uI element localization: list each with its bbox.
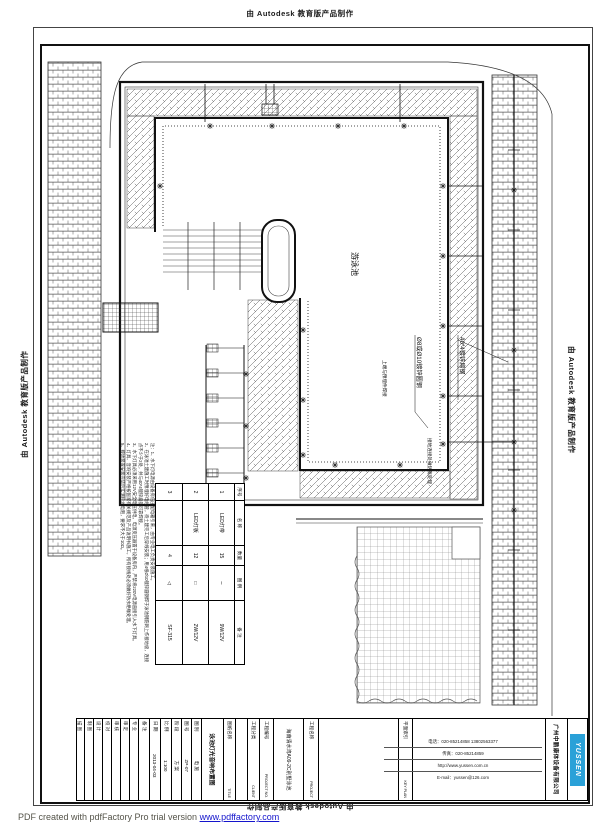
table-cell: 1	[209, 484, 234, 501]
titleblock-row-图纸名称: 图纸名称TITLE	[223, 719, 235, 800]
contact-line: E-mail：yussen@126.com	[384, 772, 542, 783]
titleblock-field-label: 比 例	[163, 719, 169, 731]
titleblock-field-value: ZP-07	[184, 759, 189, 772]
titleblock-row-dtitle: 泳池灯光音响布置图	[201, 719, 223, 800]
titleblock-company: 广州中鹏康体设备有限公司	[553, 724, 561, 795]
titleblock-field-value: 电 施	[194, 761, 200, 771]
grid-plaza	[355, 527, 480, 703]
titleblock-row-比 例: 比 例1:100	[160, 719, 171, 800]
table-cell: ∼	[209, 566, 234, 601]
titleblock-field-label: 备 注	[141, 719, 147, 731]
titleblock-row-logo: YUSSEN	[567, 719, 587, 800]
annotation-flat-steel: 40*4镀锌扁钢	[458, 337, 466, 374]
table-cell	[156, 501, 182, 546]
annotation-weld: 上端与预埋件焊接	[381, 360, 388, 397]
company-logo: YUSSEN	[570, 734, 585, 786]
table-cell: LED灯板	[183, 501, 208, 546]
table-header-cell: 数量	[235, 546, 244, 566]
lamp-junction-symbol	[440, 183, 446, 189]
signature-label: 描 图	[77, 719, 83, 731]
table-header-cell: 名 称	[235, 501, 244, 546]
titleblock-label: 工程编号	[264, 719, 270, 739]
lamp-junction-symbol	[243, 371, 249, 377]
table-row: 1LED灯带15∼9W/12V	[208, 484, 234, 664]
titleblock-label: 图纸名称	[227, 719, 233, 739]
drawing-sheet: 由 Autodesk 教育版产品制作 由 Autodesk 教育版产品制作 由 …	[0, 0, 600, 828]
site-plan-drawing: 游泳池 Ø8或Ø10镀锌圆钢 40*4镀锌扁钢 上端与预埋件焊接 接地连接处做防…	[0, 0, 600, 828]
titleblock-row-图 号: 图 号ZP-07	[181, 719, 191, 800]
table-cell: 2	[183, 484, 208, 501]
contact-line: 传真：020-85214859	[384, 748, 542, 760]
table-header-cell: 图 例	[235, 566, 244, 601]
titleblock-row-校 对: 校 对	[102, 719, 111, 800]
pool-basin	[155, 118, 448, 470]
table-row: 2LED灯板12□2W/12V	[182, 484, 208, 664]
table-row: 34◁SF-315	[156, 484, 182, 664]
signature-label: 校 对	[104, 719, 110, 731]
right-paving-band	[492, 75, 537, 705]
signature-label: 审 定	[122, 719, 128, 731]
pdffactory-link[interactable]: www.pdffactory.com	[200, 812, 280, 822]
table-cell: □	[183, 566, 208, 601]
lamp-junction-symbol	[397, 462, 403, 468]
lamp-junction-symbol	[335, 123, 341, 129]
lamp-junction-symbol	[332, 462, 338, 468]
titleblock-row-pname: 海南清水湾A09-2C别墅泳池	[273, 719, 303, 800]
titleblock-row-工程分类: 工程分类CLIENT	[247, 719, 259, 800]
table-cell: 9W/12V	[209, 601, 234, 664]
titleblock-dtitle: 泳池灯光音响布置图	[208, 733, 217, 785]
pool-label: 游泳池	[350, 252, 360, 276]
annotation-anticorrosion: 接地连接处做防腐处理	[426, 438, 433, 484]
titleblock-row-审 定: 审 定	[120, 719, 129, 800]
lamp-junction-symbol	[300, 452, 306, 458]
titleblock-row-empty	[235, 719, 247, 800]
lamp-junction-symbol	[440, 441, 446, 447]
lamp-junction-symbol	[243, 475, 249, 481]
titleblock-field-value: 方 案	[174, 761, 180, 771]
titleblock-row-描 图: 描 图	[75, 719, 84, 800]
titleblock-label: PROJECT	[309, 781, 313, 800]
lamp-junction-symbol	[440, 323, 446, 329]
titleblock-row-审 核: 审 核	[111, 719, 120, 800]
table-header-cell: 备 注	[235, 601, 244, 664]
equipment-pad	[103, 303, 158, 332]
signature-label: 专 业	[131, 719, 137, 731]
titleblock-label: PROJECT NO.	[265, 774, 269, 800]
titleblock-row-备 注: 备 注	[138, 719, 149, 800]
contact-line: 电话：020-85214858 13802563377	[384, 736, 542, 748]
titleblock-field-label: 阶 段	[174, 719, 180, 731]
lamp-junction-symbol	[300, 397, 306, 403]
titleblock-pname: 海南清水湾A09-2C别墅泳池	[285, 729, 292, 791]
note-line: 3、水下灯具必须采用12V安全电压供电，电源变压器置于设备房内，严禁将220V电…	[131, 443, 137, 663]
lamp-junction-symbol	[440, 253, 446, 259]
lamp-junction-symbol	[401, 123, 407, 129]
annotation-round-steel: Ø8或Ø10镀锌圆钢	[415, 337, 423, 388]
signature-label: 审 核	[113, 719, 119, 731]
note-line: 5、接地装置安装完毕后实测接地电阻，要求不大于10Ω。	[118, 443, 124, 663]
table-cell: 3	[156, 484, 182, 501]
titleblock-label: 工程名称	[308, 719, 314, 739]
titleblock-field-value: 1:100	[164, 760, 169, 772]
titleblock-row-工程名称: 工程名称PROJECT	[303, 719, 318, 800]
table-cell: 4	[156, 546, 182, 566]
left-paving-band	[48, 62, 101, 556]
lamp-junction-symbol	[511, 187, 517, 193]
lamp-junction-symbol	[511, 507, 517, 513]
lamp-junction-symbol	[511, 439, 517, 445]
table-header-cell: 序号	[235, 484, 244, 501]
signature-label: 设 计	[95, 719, 101, 731]
company-contact-block: 电话：020-85214858 13802563377传真：020-852148…	[384, 736, 542, 788]
table-cell: SF-315	[156, 601, 182, 664]
table-cell: LED灯带	[209, 501, 234, 546]
lamp-junction-symbol	[243, 423, 249, 429]
table-cell: 2W/12V	[183, 601, 208, 664]
table-header-row: 序号名 称数量图 例备 注	[234, 484, 244, 664]
lamp-junction-symbol	[300, 327, 306, 333]
installation-notes: 注：1、水下灯电源由设备房低压配电箱引来，由专业电工负责安装施工。2、在泳池土建…	[107, 443, 155, 663]
titleblock-label: CLIENT	[252, 785, 256, 800]
titleblock-label: 工程分类	[251, 719, 257, 739]
note-line: 4、灯具、音响安装严格按国家有关规范及产品说明书施工，所有接线处必须做好防水绝缘…	[125, 443, 131, 663]
note-line: 2、在泳池土建施工时预埋好电线管，待土建完工后穿线安装；用4根Ø10镀锌圆钢焊于…	[137, 443, 149, 663]
titleblock-label: TITLE	[228, 788, 232, 800]
titleblock-field-label: 图 号	[184, 719, 190, 731]
lamp-junction-symbol	[511, 347, 517, 353]
table-cell: 12	[183, 546, 208, 566]
titleblock-row-company: 广州中鹏康体设备有限公司	[545, 719, 567, 800]
lamp-junction-symbol	[269, 123, 275, 129]
titleblock-row-制 图: 制 图	[84, 719, 93, 800]
pool-steps	[163, 220, 295, 302]
titleblock-field-label: 图 别	[194, 719, 200, 731]
titleblock-row-工程编号: 工程编号PROJECT NO.	[259, 719, 273, 800]
fixture-schedule-table: 序号名 称数量图 例备 注1LED灯带15∼9W/12V2LED灯板12□2W/…	[155, 483, 245, 665]
titleblock-row-日 期: 日 期2013-04-03	[149, 719, 160, 800]
table-cell: 15	[209, 546, 234, 566]
lamp-junction-symbol	[157, 183, 163, 189]
titleblock-field-label: 日 期	[152, 719, 158, 731]
titleblock-row-设 计: 设 计	[93, 719, 102, 800]
pdf-watermark-text: PDF created with pdfFactory Pro trial ve…	[18, 812, 200, 822]
signature-label: 制 图	[86, 719, 92, 731]
table-cell: ◁	[156, 566, 182, 601]
titleblock-row-图 别: 图 别电 施	[191, 719, 201, 800]
titleblock-field-value: 2013-04-03	[153, 754, 158, 778]
lamp-junction-symbol	[207, 123, 213, 129]
lamp-junction-symbol	[440, 393, 446, 399]
pdf-watermark: PDF created with pdfFactory Pro trial ve…	[18, 812, 279, 822]
titleblock-row-专 业: 专 业	[129, 719, 138, 800]
titleblock-row-阶 段: 阶 段方 案	[171, 719, 181, 800]
contact-line: http://www.yussen.com.cn	[384, 760, 542, 772]
